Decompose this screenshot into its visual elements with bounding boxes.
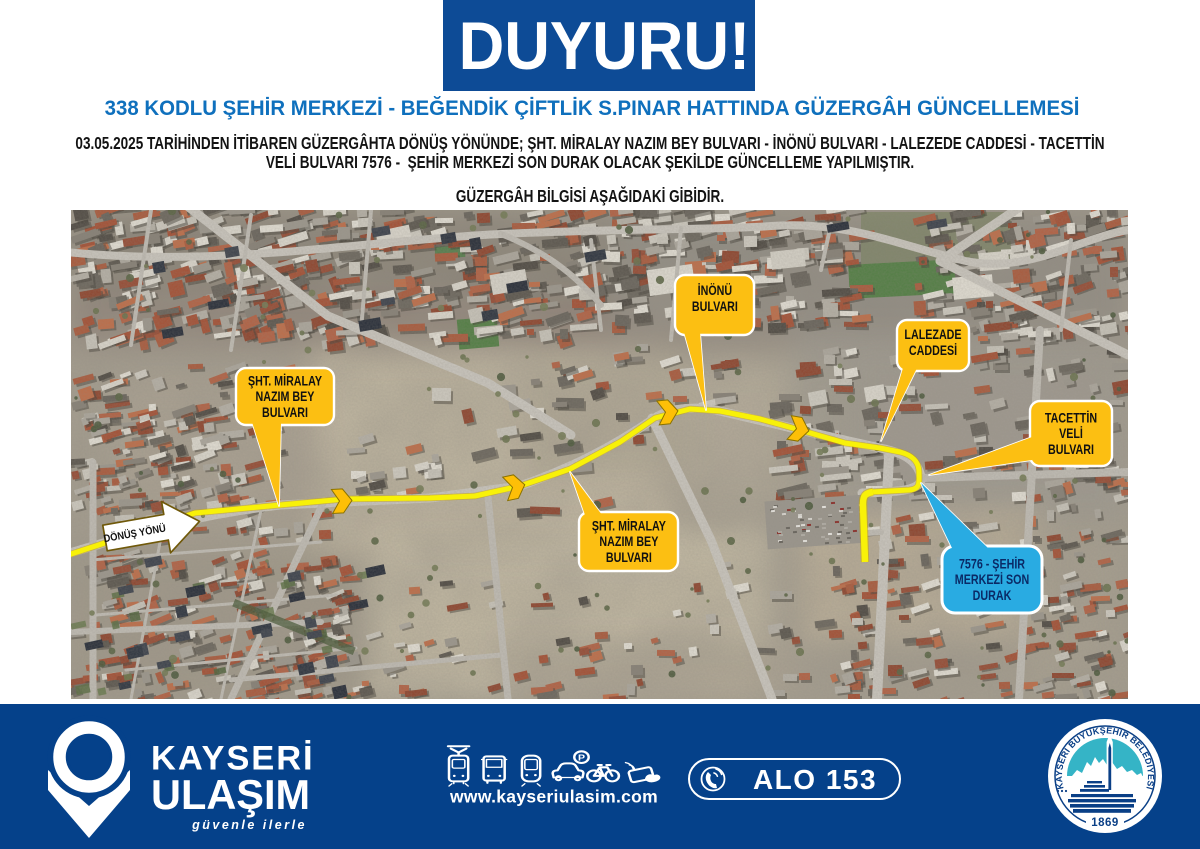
svg-text:İNÖNÜ: İNÖNÜ (698, 282, 733, 299)
svg-text:BULVARI: BULVARI (606, 550, 652, 565)
svg-text:CADDESİ: CADDESİ (909, 342, 957, 359)
svg-text:ŞHT. MİRALAY: ŞHT. MİRALAY (248, 372, 322, 389)
svg-text:BULVARI: BULVARI (692, 299, 738, 314)
svg-text:7576 - ŞEHİR: 7576 - ŞEHİR (959, 555, 1025, 572)
svg-text:BULVARI: BULVARI (262, 405, 308, 420)
svg-text:ŞHT. MİRALAY: ŞHT. MİRALAY (592, 517, 666, 534)
svg-text:P: P (578, 754, 586, 764)
svg-text:VELİ: VELİ (1059, 425, 1083, 442)
svg-text:www.kayseriulasim.com: www.kayseriulasim.com (449, 787, 658, 807)
svg-text:NAZIM BEY: NAZIM BEY (599, 534, 658, 549)
svg-text:1869: 1869 (1091, 817, 1119, 829)
svg-text:MERKEZİ SON: MERKEZİ SON (955, 571, 1029, 588)
svg-text:NAZIM BEY: NAZIM BEY (256, 389, 315, 404)
svg-text:LALEZADE: LALEZADE (904, 327, 961, 342)
svg-text:BULVARI: BULVARI (1048, 442, 1094, 457)
svg-text:güvenle ilerle: güvenle ilerle (191, 818, 307, 832)
svg-text:ULAŞIM: ULAŞIM (151, 771, 310, 818)
svg-text:ALO 153: ALO 153 (753, 764, 877, 795)
svg-text:DURAK: DURAK (973, 588, 1012, 603)
svg-text:TACETTİN: TACETTİN (1045, 409, 1097, 426)
